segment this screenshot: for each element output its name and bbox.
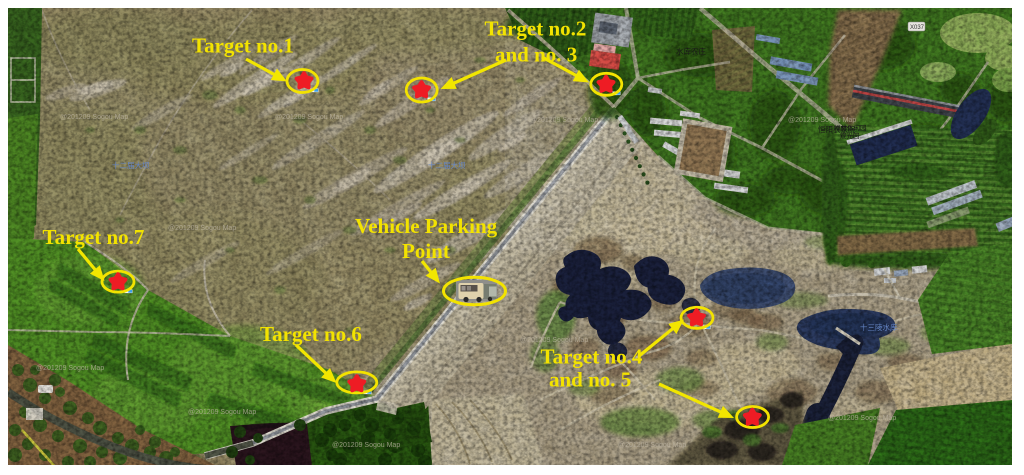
svg-text:Point: Point bbox=[402, 239, 450, 263]
svg-text:Target no.7: Target no.7 bbox=[43, 225, 145, 249]
svg-text:Vehicle Parking: Vehicle Parking bbox=[355, 214, 498, 238]
svg-text:and no. 3: and no. 3 bbox=[495, 43, 577, 67]
svg-text:Target no.2: Target no.2 bbox=[485, 17, 587, 41]
svg-text:Target no.1: Target no.1 bbox=[192, 34, 294, 58]
svg-text:Target no.4: Target no.4 bbox=[541, 345, 643, 369]
svg-text:and no. 5: and no. 5 bbox=[549, 368, 631, 392]
svg-text:Target no.6: Target no.6 bbox=[260, 322, 362, 346]
